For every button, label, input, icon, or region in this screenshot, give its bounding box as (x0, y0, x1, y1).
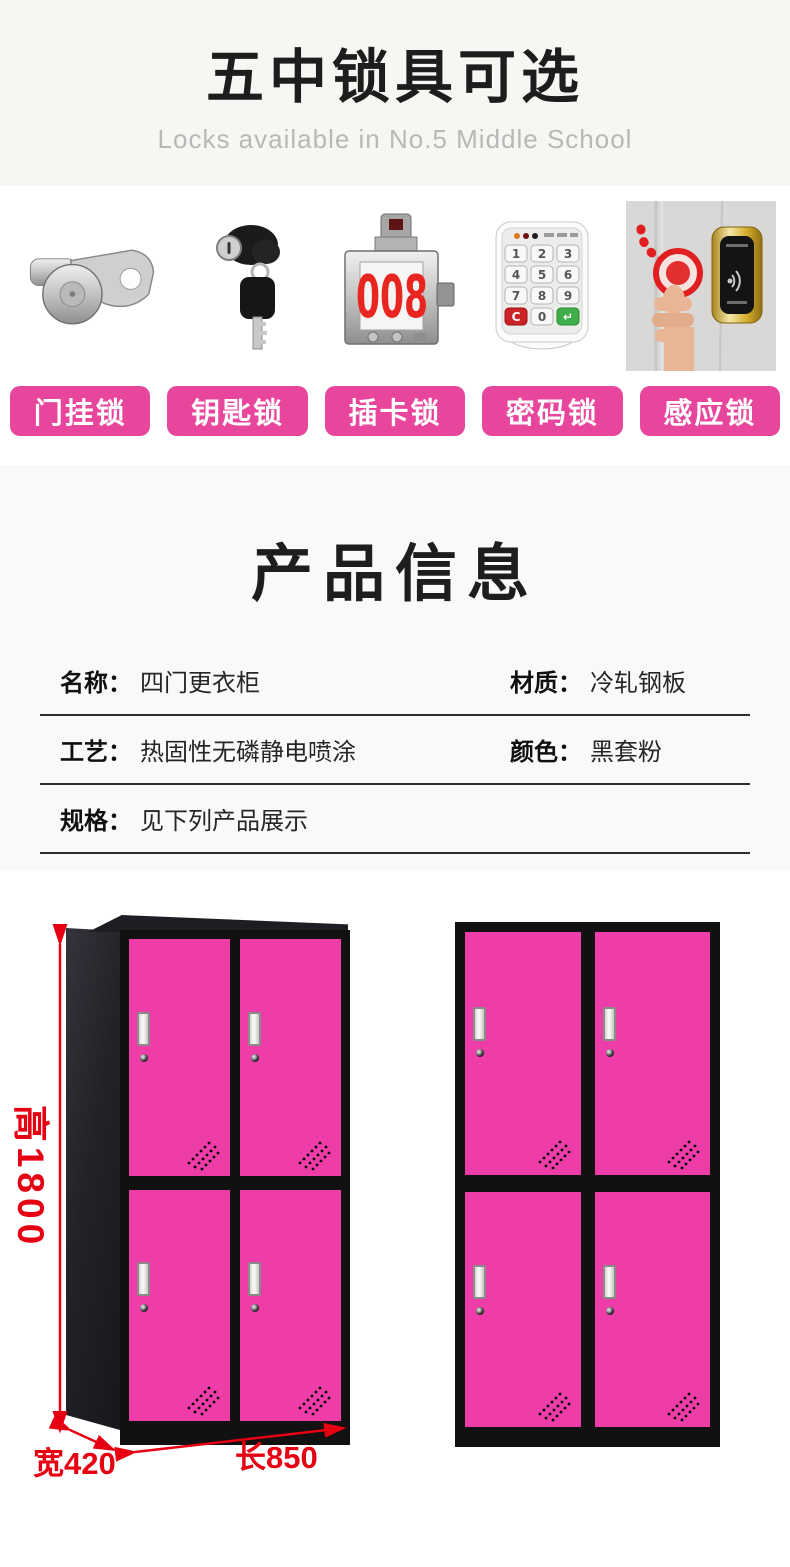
door-vents (183, 1374, 225, 1416)
locker-left-side-panel (66, 928, 120, 1430)
table-row: 工艺： 热固性无磷静电喷涂 颜色： 黑套粉 (40, 716, 750, 785)
page-title: 五中锁具可选 (0, 46, 790, 110)
field-value-process: 热固性无磷静电喷涂 (140, 732, 356, 767)
door-vents (534, 1380, 576, 1422)
keypad-key-enter: ↵ (563, 310, 573, 324)
field-label-material: 材质： (510, 663, 582, 698)
door-vents (294, 1374, 336, 1416)
page-subtitle: Locks available in No.5 Middle School (0, 124, 790, 155)
dimension-width-label: 宽420 (33, 1438, 116, 1483)
lock-label-hanging: 门挂锁 (10, 386, 150, 436)
door-vents (183, 1129, 225, 1171)
field-label-process: 工艺： (60, 732, 132, 767)
keypad-key: 4 (512, 268, 520, 282)
door-handle (137, 1012, 150, 1046)
product-info-section: 产品信息 名称： 四门更衣柜 材质： 冷轧钢板 工艺： 热固性无磷静电喷涂 颜色… (0, 465, 790, 870)
keypad-key: 1 (512, 247, 520, 261)
product-info-title: 产品信息 (0, 465, 790, 613)
field-value-spec: 见下列产品展示 (140, 801, 308, 836)
door-handle (603, 1007, 616, 1041)
locker-door (595, 1192, 711, 1427)
door-handle (248, 1012, 261, 1046)
locker-door (129, 1190, 230, 1421)
locker-door (465, 932, 581, 1175)
lock-label-card: 插卡锁 (325, 386, 465, 436)
field-value-material: 冷轧钢板 (590, 663, 686, 698)
lock-label-password: 密码锁 (482, 386, 622, 436)
locker-left-image (120, 930, 350, 1445)
table-row: 名称： 四门更衣柜 材质： 冷轧钢板 (40, 647, 750, 716)
door-vents (294, 1129, 336, 1171)
dimension-length-label: 长850 (235, 1432, 318, 1477)
locks-section: 008 (0, 186, 790, 465)
door-keyhole (251, 1054, 259, 1062)
door-keyhole (140, 1054, 148, 1062)
field-value-color: 黑套粉 (590, 732, 662, 767)
locker-door (595, 932, 711, 1175)
keypad-key: 9 (564, 289, 572, 303)
locker-door (240, 1190, 341, 1421)
field-label-name: 名称： (60, 663, 132, 698)
locker-door (129, 939, 230, 1176)
field-label-spec: 规格： (60, 801, 132, 836)
keypad-key: 6 (564, 268, 572, 282)
table-row: 规格： 见下列产品展示 (40, 785, 750, 854)
door-keyhole (606, 1049, 614, 1057)
keypad-lock-image: 1 2 3 4 5 6 7 8 9 C 0 ↵ (492, 219, 592, 354)
keypad-key: 8 (538, 289, 546, 303)
door-vents (663, 1128, 705, 1170)
keypad-key: 7 (512, 289, 520, 303)
key-lock-image (203, 219, 298, 354)
induction-lock-image (626, 201, 776, 371)
header-section: 五中锁具可选 Locks available in No.5 Middle Sc… (0, 0, 790, 186)
card-lock-number: 008 (355, 263, 427, 331)
product-info-table: 名称： 四门更衣柜 材质： 冷轧钢板 工艺： 热固性无磷静电喷涂 颜色： 黑套粉… (40, 647, 750, 854)
keypad-key: 5 (538, 268, 546, 282)
door-vents (663, 1380, 705, 1422)
door-keyhole (140, 1304, 148, 1312)
locker-right-image (455, 922, 720, 1447)
door-vents (534, 1128, 576, 1170)
door-handle (473, 1007, 486, 1041)
door-keyhole (606, 1307, 614, 1315)
keypad-key: 2 (538, 247, 546, 261)
lock-label-key: 钥匙锁 (167, 386, 307, 436)
locker-door (465, 1192, 581, 1427)
door-handle (473, 1265, 486, 1299)
keypad-key: 3 (564, 247, 572, 261)
door-handle (603, 1265, 616, 1299)
dimension-height-label: 高1800 (7, 1105, 61, 1249)
door-keyhole (476, 1307, 484, 1315)
lock-label-induction: 感应锁 (640, 386, 780, 436)
cam-lock-image (14, 234, 169, 339)
field-label-color: 颜色： (510, 732, 582, 767)
door-handle (248, 1262, 261, 1296)
door-keyhole (476, 1049, 484, 1057)
card-lock-image: 008 (333, 209, 458, 364)
locker-display-section: 高1800 宽420 长850 (0, 870, 790, 1567)
lock-images-row: 008 (0, 186, 790, 386)
lock-labels-row: 门挂锁 钥匙锁 插卡锁 密码锁 感应锁 (0, 386, 790, 436)
keypad-key: 0 (538, 310, 546, 324)
door-handle (137, 1262, 150, 1296)
door-keyhole (251, 1304, 259, 1312)
locker-door (240, 939, 341, 1176)
keypad-key-clear: C (511, 310, 520, 324)
field-value-name: 四门更衣柜 (140, 663, 260, 698)
